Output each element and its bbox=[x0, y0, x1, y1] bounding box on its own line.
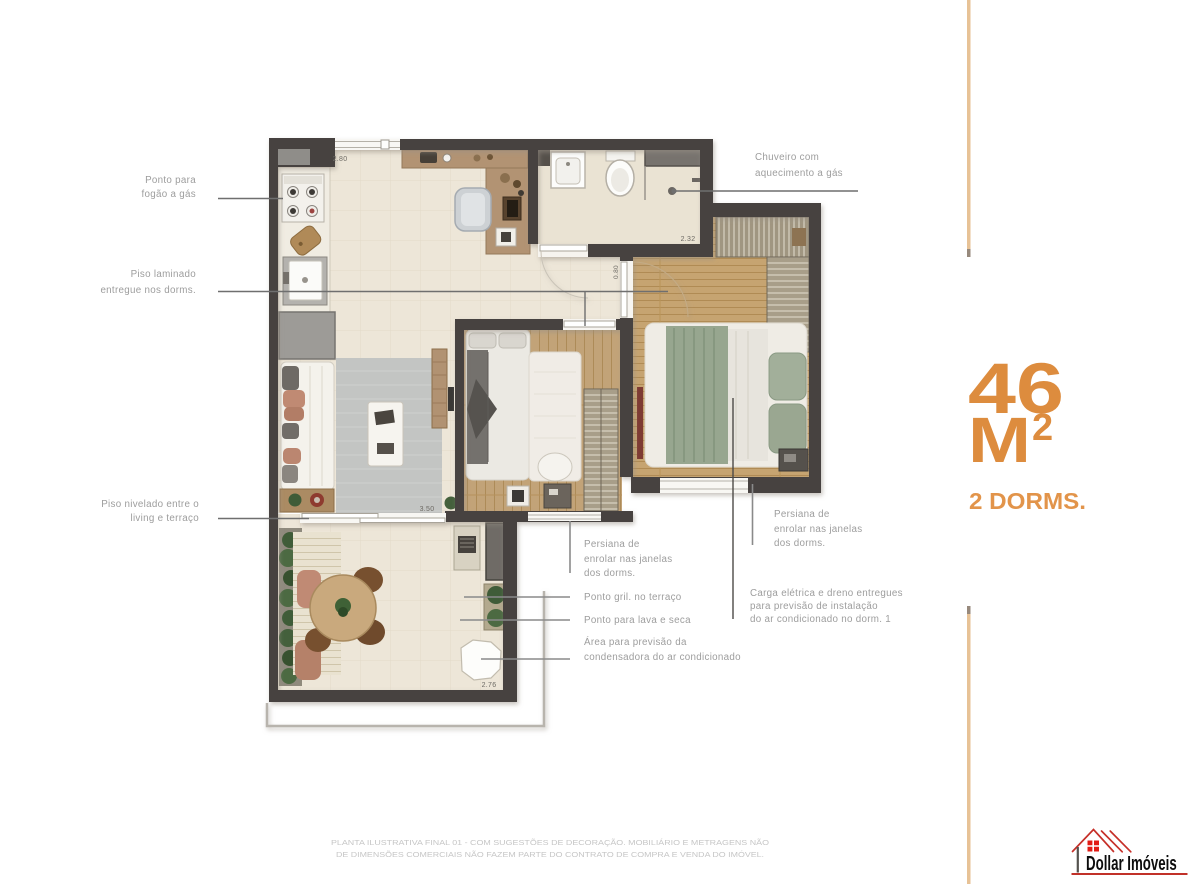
svg-text:Piso laminado: Piso laminado bbox=[131, 269, 197, 280]
svg-text:Carga elétrica e dreno entregu: Carga elétrica e dreno entregues bbox=[750, 588, 903, 599]
svg-text:enrolar nas janelas: enrolar nas janelas bbox=[584, 554, 672, 565]
svg-text:2: 2 bbox=[1032, 407, 1053, 449]
svg-text:enrolar nas janelas: enrolar nas janelas bbox=[774, 524, 862, 535]
svg-text:do ar condicionado no dorm. 1: do ar condicionado no dorm. 1 bbox=[750, 614, 891, 625]
svg-text:2.80: 2.80 bbox=[333, 156, 348, 163]
svg-text:0.80: 0.80 bbox=[613, 265, 620, 279]
svg-text:3.50: 3.50 bbox=[420, 506, 435, 513]
svg-text:M: M bbox=[968, 404, 1031, 476]
svg-text:Ponto gril. no terraço: Ponto gril. no terraço bbox=[584, 592, 682, 603]
svg-text:2 DORMS.: 2 DORMS. bbox=[969, 488, 1086, 514]
svg-text:living e terraço: living e terraço bbox=[130, 513, 199, 524]
svg-text:condensadora do ar condicionad: condensadora do ar condicionado bbox=[584, 652, 741, 663]
svg-text:Persiana de: Persiana de bbox=[584, 539, 640, 550]
svg-text:Persiana de: Persiana de bbox=[774, 509, 830, 520]
svg-text:aquecimento a gás: aquecimento a gás bbox=[755, 168, 843, 179]
svg-text:2.76: 2.76 bbox=[482, 682, 497, 689]
svg-text:PLANTA ILUSTRATIVA FINAL 01 -: PLANTA ILUSTRATIVA FINAL 01 - COM SUGEST… bbox=[331, 838, 770, 847]
svg-text:2.32: 2.32 bbox=[681, 236, 696, 243]
svg-text:dos dorms.: dos dorms. bbox=[584, 568, 635, 579]
svg-text:Dollar Imóveis: Dollar Imóveis bbox=[1086, 852, 1177, 875]
svg-text:Piso nivelado entre o: Piso nivelado entre o bbox=[101, 499, 199, 510]
svg-text:dos dorms.: dos dorms. bbox=[774, 538, 825, 549]
svg-text:Chuveiro com: Chuveiro com bbox=[755, 152, 819, 163]
svg-text:DE DIMENSÕES COMERCIAIS NÃO FA: DE DIMENSÕES COMERCIAIS NÃO FAZEM PARTE … bbox=[336, 850, 764, 859]
svg-text:Área para previsão da: Área para previsão da bbox=[584, 637, 687, 648]
svg-text:para previsão de instalação: para previsão de instalação bbox=[750, 601, 878, 612]
svg-text:entregue nos dorms.: entregue nos dorms. bbox=[100, 285, 196, 296]
svg-text:fogão a gás: fogão a gás bbox=[141, 189, 196, 200]
svg-text:Ponto para lava e seca: Ponto para lava e seca bbox=[584, 615, 691, 626]
svg-text:Ponto para: Ponto para bbox=[145, 175, 196, 186]
